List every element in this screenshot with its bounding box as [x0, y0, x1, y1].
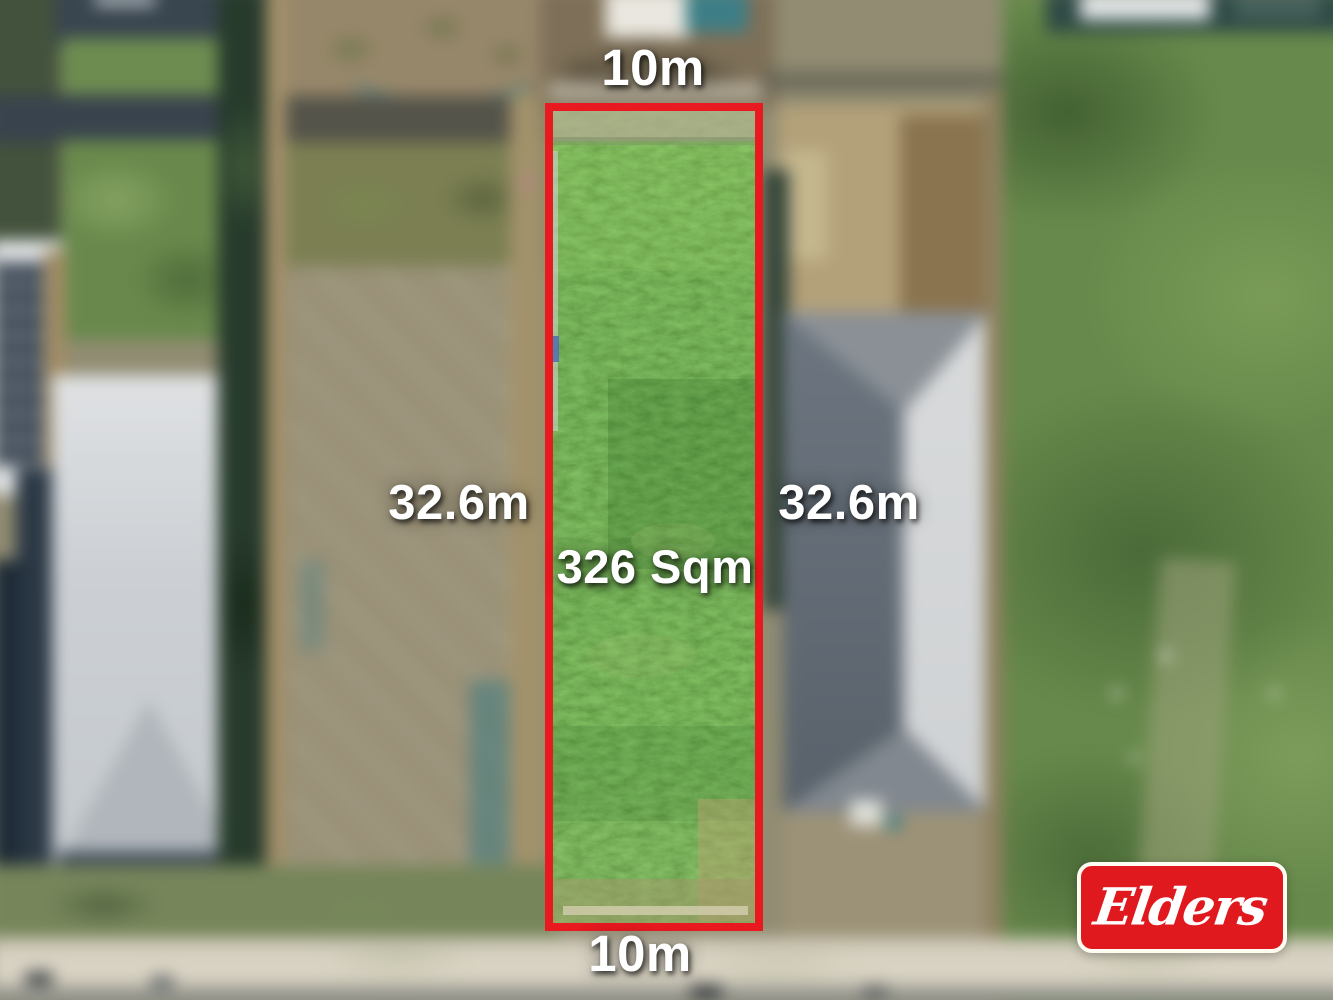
bg-bird-4	[1130, 755, 1139, 761]
dimension-label-frontage-top: 10m	[568, 42, 738, 93]
bg-roof-glint	[95, 0, 155, 6]
bg-scrub-strip	[286, 142, 548, 268]
bg-right-yard-white-bit	[850, 800, 882, 826]
bg-teal-pool	[686, 0, 748, 32]
bg-car-2	[150, 976, 174, 987]
bg-white-tarp	[605, 0, 690, 38]
bg-dirt-column-right	[985, 90, 1003, 940]
bg-framing-teal-accent-2	[300, 560, 324, 650]
bg-right-yard	[783, 812, 988, 937]
dimension-label-frontage-bottom: 10m	[555, 928, 725, 979]
bg-right-yard-teal-bit	[886, 816, 901, 829]
elders-logo-wordmark: Elders	[1081, 866, 1283, 949]
bg-fence-shadow-band	[286, 96, 548, 144]
bg-lawn-mid	[62, 140, 240, 340]
dimension-label-side-right: 32.6m	[764, 479, 934, 528]
bg-dirt-pad-dark	[900, 115, 985, 313]
lot-grass	[553, 111, 755, 923]
bg-car-3	[690, 985, 722, 998]
bg-top-right-grey-strip	[1235, 0, 1320, 18]
dimension-label-side-left: 32.6m	[374, 479, 544, 528]
bg-garden-hose	[335, 28, 550, 104]
bg-bird-2	[1112, 690, 1122, 697]
bg-fence-line	[266, 0, 286, 870]
bg-asphalt-edge	[0, 988, 1333, 1000]
aerial-property-photo: 10m 32.6m 32.6m 326 Sqm 10m Elders	[0, 0, 1333, 1000]
bg-bird-1	[1160, 652, 1171, 660]
bg-navy-roof-edge	[0, 560, 22, 900]
bg-dirt-pad-light	[783, 150, 828, 260]
bg-solar-panels	[0, 262, 44, 467]
bg-top-right-white-strip	[1080, 0, 1210, 20]
bg-pink-flower-dot	[523, 178, 532, 187]
bg-car-1	[25, 972, 53, 985]
bg-car-4	[862, 986, 888, 997]
bg-hedge-column	[218, 0, 270, 870]
bg-grass-verge	[0, 865, 560, 945]
area-label: 326 Sqm	[545, 543, 765, 590]
elders-logo-text: Elders	[1088, 878, 1271, 938]
property-lot-boundary	[545, 103, 763, 931]
elders-logo: Elders	[1077, 862, 1287, 953]
bg-bird-3	[1270, 690, 1279, 697]
